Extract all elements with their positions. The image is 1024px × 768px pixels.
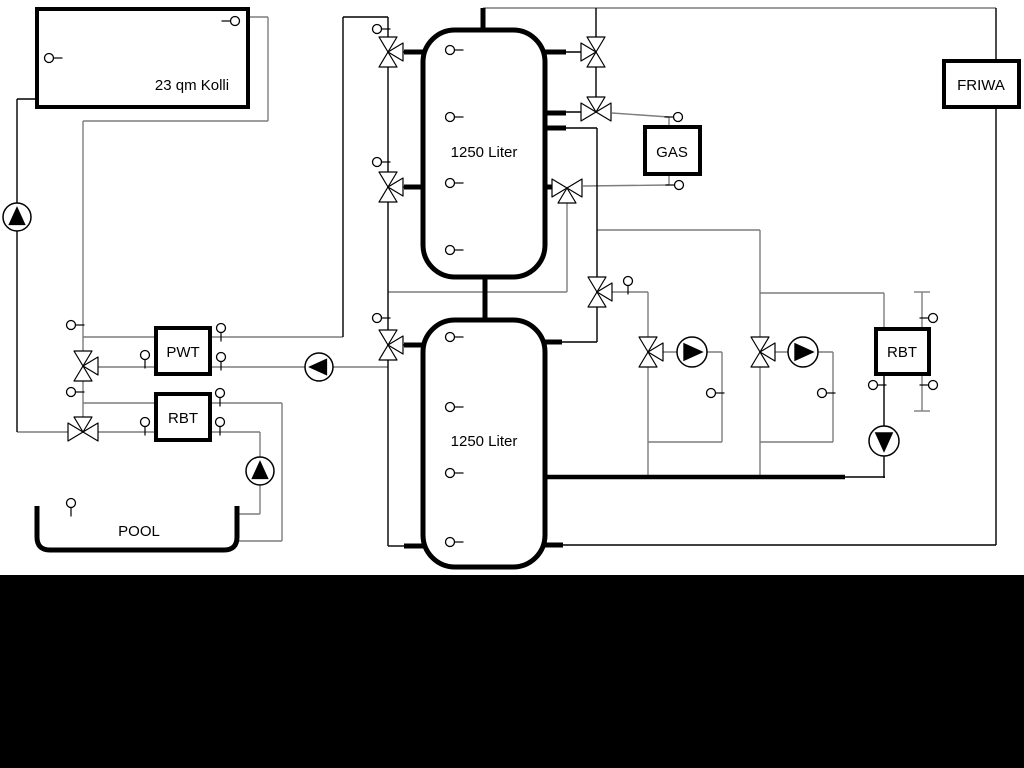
sensor-bulb-icon [216, 389, 225, 398]
sensor-bulb-icon [141, 418, 150, 427]
pwt-label: PWT [166, 344, 199, 361]
sensor-bulb-icon [141, 351, 150, 360]
sensor-bulb-icon [869, 381, 878, 390]
sensor-bulb-icon [446, 403, 455, 412]
sensor-bulb-icon [446, 113, 455, 122]
sensor-bulb-icon [373, 25, 382, 34]
sensor-bulb-icon [373, 158, 382, 167]
buffer-tank-top-label: 1250 Liter [451, 144, 518, 161]
sensor-bulb-icon [929, 381, 938, 390]
sensor-bulb-icon [929, 314, 938, 323]
rbt-right-label: RBT [887, 344, 917, 361]
sensor-bulb-icon [217, 324, 226, 333]
buffer-tank-bottom-label: 1250 Liter [451, 433, 518, 450]
rbt-left-label: RBT [168, 410, 198, 427]
buffer-charge-pump [305, 353, 333, 381]
sensor-bulb-icon [446, 46, 455, 55]
sensor-bulb-icon [45, 54, 54, 63]
solar-pump [3, 203, 31, 231]
sensor-bulb-icon [446, 469, 455, 478]
sensor-bulb-icon [446, 538, 455, 547]
hydraulic-scheme-canvas: 23 qm Kolli 1250 Liter 1250 Liter GAS FR… [0, 0, 1024, 768]
sensor-bulb-icon [624, 277, 633, 286]
sensor-bulb-icon [231, 17, 240, 26]
sensor-bulb-icon [67, 499, 76, 508]
sensor-bulb-icon [67, 321, 76, 330]
sensor-bulb-icon [707, 389, 716, 398]
sensor-bulb-icon [446, 246, 455, 255]
sensor-bulb-icon [446, 179, 455, 188]
sensor-bulb-icon [373, 314, 382, 323]
sensor-bulb-icon [675, 181, 684, 190]
circuit2-pump [788, 337, 818, 367]
circuit1-pump [677, 337, 707, 367]
sensor-bulb-icon [818, 389, 827, 398]
pool-pump [246, 457, 274, 485]
gas-boiler-label: GAS [656, 144, 688, 161]
sensor-bulb-icon [674, 113, 683, 122]
schematic-svg: 23 qm Kolli 1250 Liter 1250 Liter GAS FR… [0, 0, 1024, 768]
bottom-black-band [0, 575, 1024, 768]
sensor-bulb-icon [216, 418, 225, 427]
rbt-right-pump [869, 426, 899, 456]
sensor-bulb-icon [67, 388, 76, 397]
sensor-bulb-icon [217, 353, 226, 362]
sensor-bulb-icon [446, 333, 455, 342]
pool-label: POOL [118, 523, 160, 540]
friwa-station-label: FRIWA [957, 77, 1005, 94]
collector-label: 23 qm Kolli [155, 77, 229, 94]
